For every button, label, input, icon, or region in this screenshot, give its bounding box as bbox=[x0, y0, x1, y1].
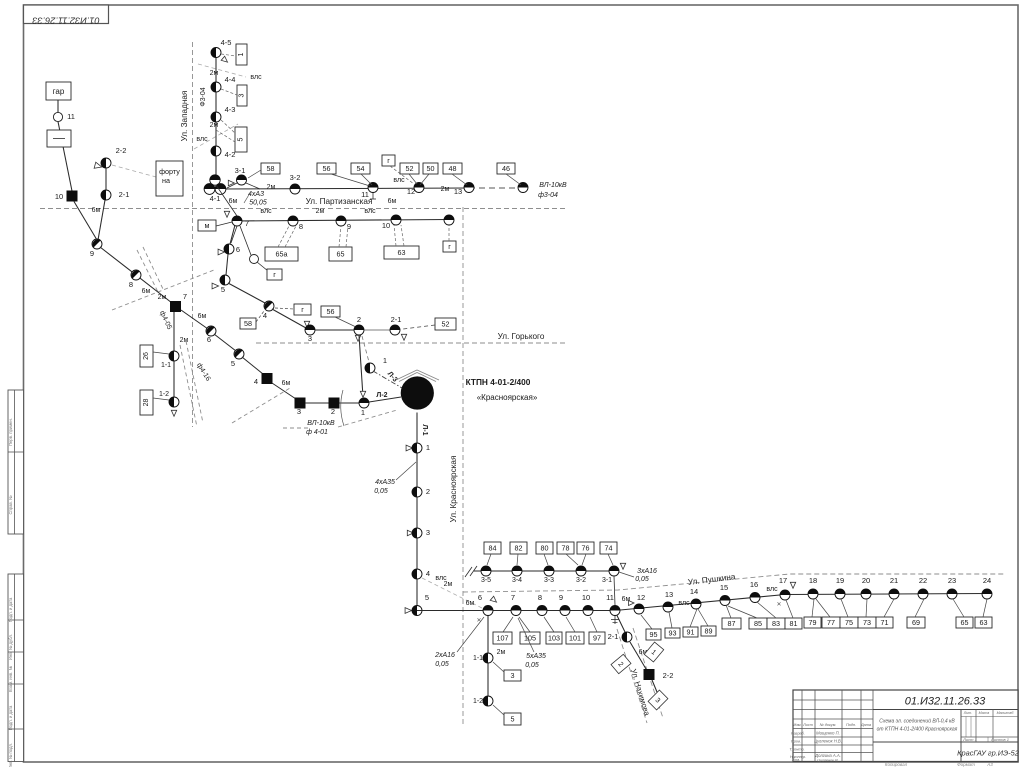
svg-text:85: 85 bbox=[754, 619, 762, 628]
svg-text:11: 11 bbox=[361, 190, 369, 199]
svg-text:78: 78 bbox=[562, 543, 570, 552]
svg-text:5: 5 bbox=[238, 137, 245, 141]
svg-text:Масштаб: Масштаб bbox=[997, 711, 1015, 715]
svg-text:6: 6 bbox=[236, 245, 240, 254]
svg-text:5хА35: 5хА35 bbox=[526, 653, 546, 660]
svg-text:1: 1 bbox=[426, 443, 430, 452]
svg-text:93: 93 bbox=[669, 628, 677, 637]
svg-text:Разраб.: Разраб. bbox=[791, 732, 805, 736]
svg-text:01.И32.11.26.33: 01.И32.11.26.33 bbox=[32, 16, 100, 26]
svg-text:2хА16: 2хА16 bbox=[434, 652, 455, 659]
svg-text:65: 65 bbox=[961, 618, 969, 627]
svg-text:Дата: Дата bbox=[860, 723, 871, 727]
svg-text:5: 5 bbox=[425, 593, 429, 602]
svg-text:на: на bbox=[162, 176, 170, 185]
svg-text:Ул. Красноярская: Ул. Красноярская bbox=[449, 456, 458, 523]
svg-text:65: 65 bbox=[337, 249, 345, 258]
svg-text:107: 107 bbox=[497, 633, 509, 642]
svg-text:3: 3 bbox=[297, 407, 301, 416]
svg-text:1-2: 1-2 bbox=[159, 391, 169, 398]
svg-text:15: 15 bbox=[720, 583, 728, 592]
svg-text:12: 12 bbox=[637, 593, 645, 602]
svg-text:г: г bbox=[273, 270, 276, 279]
svg-text:Ул. Горького: Ул. Горького bbox=[498, 332, 545, 341]
svg-text:26: 26 bbox=[143, 352, 150, 360]
svg-text:Формат: Формат bbox=[957, 762, 975, 767]
svg-text:10: 10 bbox=[55, 192, 63, 201]
svg-text:4-2: 4-2 bbox=[225, 150, 236, 159]
svg-text:0,05: 0,05 bbox=[525, 662, 539, 669]
svg-text:Пров.: Пров. bbox=[791, 740, 801, 744]
svg-text:4: 4 bbox=[426, 569, 430, 578]
svg-text:влс: влс bbox=[196, 136, 208, 143]
svg-text:9: 9 bbox=[559, 593, 563, 602]
svg-text:Копировал: Копировал bbox=[885, 762, 908, 767]
svg-text:6м: 6м bbox=[142, 288, 151, 295]
svg-text:ВЛ-10кВ: ВЛ-10кВ bbox=[539, 182, 567, 189]
svg-text:82: 82 bbox=[515, 543, 523, 552]
svg-text:6: 6 bbox=[478, 593, 482, 602]
svg-text:Утв.: Утв. bbox=[792, 758, 800, 762]
svg-text:2м: 2м bbox=[441, 186, 450, 193]
svg-text:от КТПН 4-01-2/400 Красноярска: от КТПН 4-01-2/400 Красноярская bbox=[877, 727, 958, 733]
svg-text:ф4-05: ф4-05 bbox=[158, 310, 173, 331]
svg-text:гар: гар bbox=[53, 87, 65, 96]
svg-text:Справ. №: Справ. № bbox=[8, 495, 13, 515]
svg-text:влс: влс bbox=[364, 208, 376, 215]
svg-text:2м: 2м bbox=[210, 70, 219, 77]
svg-text:83: 83 bbox=[772, 619, 780, 628]
svg-text:87: 87 bbox=[728, 619, 736, 628]
svg-text:КрасГАУ гр.ИЭ-52: КрасГАУ гр.ИЭ-52 bbox=[957, 749, 1019, 758]
svg-text:91: 91 bbox=[687, 627, 695, 636]
svg-text:81: 81 bbox=[790, 619, 798, 628]
svg-text:1-2: 1-2 bbox=[473, 698, 483, 705]
svg-text:3-1: 3-1 bbox=[602, 577, 612, 584]
svg-text:форту: форту bbox=[159, 167, 180, 176]
svg-text:Лит.: Лит. bbox=[963, 711, 972, 715]
svg-text:7: 7 bbox=[183, 292, 187, 301]
svg-text:54: 54 bbox=[357, 164, 365, 173]
svg-text:2м: 2м bbox=[444, 581, 453, 588]
svg-text:52: 52 bbox=[442, 319, 450, 328]
svg-text:65а: 65а bbox=[276, 249, 288, 258]
svg-text:21: 21 bbox=[890, 576, 898, 585]
svg-text:3-4: 3-4 bbox=[512, 577, 522, 584]
svg-text:48: 48 bbox=[449, 164, 457, 173]
svg-text:73: 73 bbox=[863, 618, 871, 627]
svg-text:24: 24 bbox=[983, 576, 991, 585]
svg-text:Листов 1: Листов 1 bbox=[990, 737, 1009, 742]
svg-text:2м: 2м bbox=[316, 208, 325, 215]
svg-text:г: г bbox=[301, 305, 304, 314]
svg-text:84: 84 bbox=[489, 543, 497, 552]
svg-text:2-2: 2-2 bbox=[663, 671, 674, 680]
svg-text:2: 2 bbox=[331, 407, 335, 416]
svg-text:Лист: Лист bbox=[802, 723, 813, 727]
svg-text:50,05: 50,05 bbox=[249, 200, 267, 207]
svg-text:2-2: 2-2 bbox=[116, 146, 127, 155]
svg-text:ВЛ-10кВ: ВЛ-10кВ bbox=[307, 420, 335, 427]
svg-text:8: 8 bbox=[299, 222, 303, 231]
svg-text:4: 4 bbox=[254, 377, 258, 386]
svg-text:19: 19 bbox=[836, 576, 844, 585]
svg-text:4-5: 4-5 bbox=[221, 38, 232, 47]
svg-text:г: г bbox=[387, 156, 390, 165]
svg-text:Л-2: Л-2 bbox=[376, 392, 387, 399]
svg-text:2м: 2м bbox=[210, 122, 219, 129]
svg-text:4-1: 4-1 bbox=[210, 194, 221, 203]
svg-text:97: 97 bbox=[593, 633, 601, 642]
svg-text:23: 23 bbox=[948, 576, 956, 585]
svg-text:9: 9 bbox=[90, 249, 94, 258]
svg-text:4хА35: 4хА35 bbox=[375, 479, 395, 486]
svg-text:3: 3 bbox=[426, 528, 430, 537]
svg-text:2: 2 bbox=[357, 315, 361, 324]
svg-text:6м: 6м bbox=[92, 207, 101, 214]
svg-text:6м: 6м bbox=[229, 198, 238, 205]
svg-text:6м: 6м bbox=[466, 600, 475, 607]
svg-text:«Красноярская»: «Красноярская» bbox=[477, 393, 538, 402]
svg-text:Ф3-04: Ф3-04 bbox=[200, 87, 207, 106]
svg-text:10: 10 bbox=[582, 593, 590, 602]
svg-text:12: 12 bbox=[407, 187, 415, 196]
svg-text:КТПН 4-01-2/400: КТПН 4-01-2/400 bbox=[466, 377, 531, 387]
svg-text:74: 74 bbox=[605, 543, 613, 552]
svg-text:Ул. Западная: Ул. Западная bbox=[180, 91, 189, 142]
svg-text:Схема эл. соединений ВЛ-0,4 кВ: Схема эл. соединений ВЛ-0,4 кВ bbox=[879, 718, 955, 725]
svg-text:20: 20 bbox=[862, 576, 870, 585]
svg-text:8: 8 bbox=[538, 593, 542, 602]
svg-text:2м: 2м bbox=[180, 337, 189, 344]
svg-text:✕: ✕ bbox=[776, 602, 781, 608]
svg-text:ф4-16: ф4-16 bbox=[195, 362, 211, 383]
svg-text:6: 6 bbox=[207, 335, 211, 344]
svg-text:Масса: Масса bbox=[979, 711, 990, 715]
svg-text:4-3: 4-3 bbox=[225, 105, 236, 114]
svg-text:Цугленок В.: Цугленок В. bbox=[817, 759, 838, 763]
svg-text:1: 1 bbox=[238, 52, 245, 56]
svg-text:2м: 2м bbox=[158, 294, 167, 301]
svg-text:влс: влс bbox=[260, 208, 272, 215]
svg-text:16: 16 bbox=[750, 580, 758, 589]
svg-text:71: 71 bbox=[881, 618, 889, 627]
svg-text:3-5: 3-5 bbox=[481, 577, 491, 584]
svg-text:Подп. и дата: Подп. и дата bbox=[8, 597, 13, 622]
svg-text:влс: влс bbox=[393, 177, 405, 184]
svg-text:ф 4-01: ф 4-01 bbox=[306, 429, 328, 436]
svg-text:69: 69 bbox=[912, 618, 920, 627]
svg-text:влс: влс bbox=[250, 74, 262, 81]
svg-text:77: 77 bbox=[827, 618, 835, 627]
svg-text:8: 8 bbox=[129, 280, 133, 289]
svg-text:46: 46 bbox=[502, 164, 510, 173]
svg-text:г: г bbox=[448, 242, 451, 251]
svg-text:5: 5 bbox=[231, 359, 235, 368]
svg-text:7: 7 bbox=[511, 593, 515, 602]
svg-text:5: 5 bbox=[511, 714, 515, 723]
svg-text:63: 63 bbox=[980, 618, 988, 627]
svg-text:Подп.: Подп. bbox=[846, 723, 856, 727]
svg-text:3-2: 3-2 bbox=[290, 173, 301, 182]
svg-text:1: 1 bbox=[361, 408, 365, 417]
svg-text:Перв. примен.: Перв. примен. bbox=[8, 418, 13, 446]
svg-text:56: 56 bbox=[323, 164, 331, 173]
svg-text:52: 52 bbox=[406, 164, 414, 173]
svg-text:0,05: 0,05 bbox=[374, 488, 388, 495]
svg-text:18: 18 bbox=[809, 576, 817, 585]
svg-text:2-1: 2-1 bbox=[608, 632, 619, 641]
svg-text:63: 63 bbox=[398, 248, 406, 257]
svg-text:3-2: 3-2 bbox=[576, 577, 586, 584]
svg-text:м: м bbox=[205, 221, 210, 230]
svg-text:10: 10 bbox=[382, 221, 390, 230]
svg-text:2-1: 2-1 bbox=[119, 190, 130, 199]
svg-text:4: 4 bbox=[263, 311, 267, 320]
svg-text:2м: 2м bbox=[267, 184, 276, 191]
svg-text:7: 7 bbox=[245, 219, 249, 228]
svg-text:0,05: 0,05 bbox=[635, 576, 649, 583]
svg-text:79: 79 bbox=[809, 618, 817, 627]
svg-text:Л-1: Л-1 bbox=[421, 424, 428, 435]
svg-text:Взам. инв. №: Взам. инв. № bbox=[8, 666, 13, 692]
svg-text:Т.контр.: Т.контр. bbox=[789, 748, 804, 752]
svg-text:2м: 2м bbox=[497, 649, 506, 656]
svg-text:80: 80 bbox=[541, 543, 549, 552]
svg-text:4хА3: 4хА3 bbox=[248, 191, 264, 198]
svg-text:Л-3: Л-3 bbox=[386, 371, 399, 384]
svg-text:2-1: 2-1 bbox=[391, 315, 402, 324]
svg-text:3: 3 bbox=[239, 93, 246, 97]
svg-text:01.И32.11.26.33: 01.И32.11.26.33 bbox=[905, 696, 986, 708]
svg-text:101: 101 bbox=[569, 633, 581, 642]
svg-text:0,05: 0,05 bbox=[435, 661, 449, 668]
svg-text:Ул. Пушкина: Ул. Пушкина bbox=[687, 572, 736, 587]
svg-text:Изм.: Изм. bbox=[793, 723, 801, 727]
svg-text:влс: влс bbox=[766, 586, 778, 593]
svg-text:2: 2 bbox=[426, 487, 430, 496]
svg-text:Инв. № дубл.: Инв. № дубл. bbox=[8, 634, 13, 660]
svg-text:4-4: 4-4 bbox=[225, 75, 236, 84]
svg-text:89: 89 bbox=[705, 626, 713, 635]
svg-text:3хА16: 3хА16 bbox=[637, 568, 657, 575]
svg-text:Инв. № подл.: Инв. № подл. bbox=[8, 743, 13, 767]
svg-text:Лист 1: Лист 1 bbox=[962, 737, 977, 742]
svg-text:влс: влс bbox=[678, 600, 690, 607]
svg-text:11: 11 bbox=[606, 593, 614, 602]
svg-text:56: 56 bbox=[327, 307, 335, 316]
svg-text:17: 17 bbox=[779, 576, 787, 585]
svg-text:11: 11 bbox=[67, 112, 75, 121]
svg-text:22: 22 bbox=[919, 576, 927, 585]
svg-text:50: 50 bbox=[427, 164, 435, 173]
svg-text:5: 5 bbox=[221, 285, 225, 294]
svg-text:6м: 6м bbox=[282, 380, 291, 387]
svg-text:№ докум.: № докум. bbox=[820, 723, 837, 727]
svg-text:75: 75 bbox=[845, 618, 853, 627]
svg-text:6м: 6м bbox=[388, 198, 397, 205]
svg-text:1-1: 1-1 bbox=[473, 655, 483, 662]
svg-text:6м: 6м bbox=[198, 313, 207, 320]
svg-text:103: 103 bbox=[548, 633, 560, 642]
svg-text:14: 14 bbox=[690, 587, 698, 596]
svg-text:Мищенко П.: Мищенко П. bbox=[816, 731, 840, 736]
svg-text:13: 13 bbox=[665, 590, 673, 599]
svg-text:3-3: 3-3 bbox=[544, 577, 554, 584]
svg-text:3-1: 3-1 bbox=[235, 166, 246, 175]
svg-text:Долгина А.А.: Долгина А.А. bbox=[814, 753, 841, 758]
svg-text:95: 95 bbox=[650, 630, 658, 639]
svg-text:Цугленок Н.В.: Цугленок Н.В. bbox=[814, 739, 842, 744]
svg-text:76: 76 bbox=[582, 543, 590, 552]
svg-text:Подп. и дата: Подп. и дата bbox=[8, 705, 13, 730]
svg-text:1-1: 1-1 bbox=[161, 362, 171, 369]
svg-text:3: 3 bbox=[511, 671, 515, 680]
svg-text:3: 3 bbox=[308, 334, 312, 343]
svg-text:28: 28 bbox=[143, 399, 150, 407]
svg-text:58: 58 bbox=[244, 319, 252, 328]
svg-text:58: 58 bbox=[267, 164, 275, 173]
svg-text:13: 13 bbox=[454, 187, 462, 196]
svg-text:А3: А3 bbox=[986, 762, 993, 767]
svg-text:ф3-04: ф3-04 bbox=[538, 192, 558, 199]
svg-text:1: 1 bbox=[383, 356, 387, 365]
